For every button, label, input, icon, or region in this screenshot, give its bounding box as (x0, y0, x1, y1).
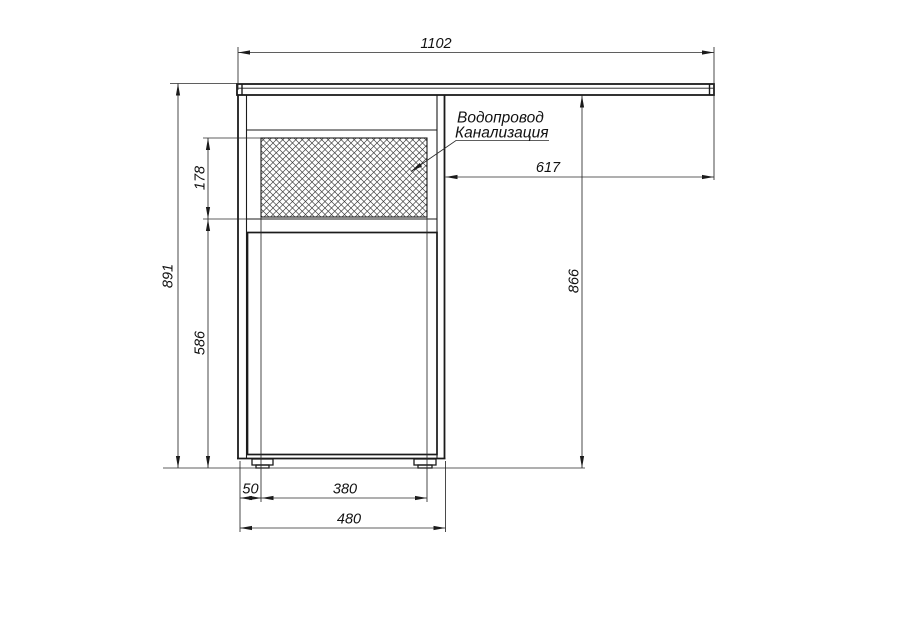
dim-text-cabinet-width: 480 (337, 512, 361, 528)
drawing-canvas: 1102 617 891 178 586 866 50 380 480 Водо… (0, 0, 900, 636)
countertop (237, 84, 714, 95)
dim-text-underside-height: 866 (567, 268, 583, 293)
left-foot-pad (256, 465, 269, 468)
dim-text-overall-height: 891 (161, 264, 177, 288)
utilities-label-line2: Канализация (455, 125, 549, 142)
dim-text-door-height: 586 (193, 330, 209, 355)
dim-text-feet-span: 380 (333, 482, 357, 498)
right-foot (414, 459, 436, 465)
dim-text-countertop-overhang: 617 (536, 160, 561, 176)
dim-text-niche-height: 178 (193, 166, 209, 190)
dim-text-countertop-width: 1102 (420, 36, 451, 52)
left-foot (252, 459, 273, 465)
technical-opening-hatch (261, 138, 427, 217)
door-panel (248, 233, 438, 455)
right-foot-pad (418, 465, 432, 468)
cabinet-geometry (237, 84, 714, 468)
technical-drawing: 1102 617 891 178 586 866 50 380 480 Водо… (0, 0, 900, 636)
dim-text-foot-inset: 50 (242, 482, 258, 498)
utilities-leader-line (411, 141, 549, 172)
